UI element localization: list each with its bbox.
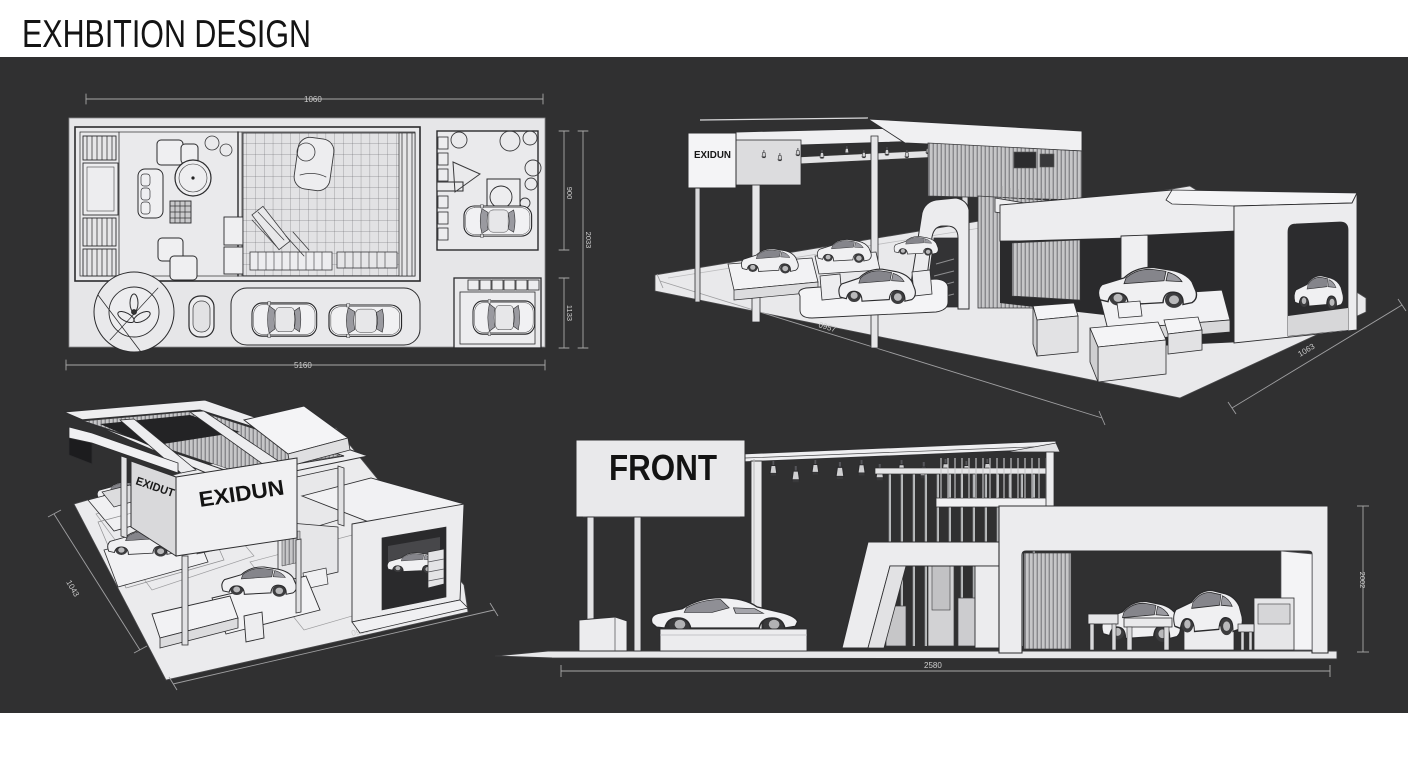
svg-text:2033: 2033 (584, 232, 593, 249)
svg-text:EXIDUN: EXIDUN (694, 150, 731, 161)
svg-text:EXHBITION DESIGN: EXHBITION DESIGN (22, 13, 311, 56)
svg-text:2002: 2002 (1358, 572, 1367, 589)
svg-text:FRONT: FRONT (609, 447, 717, 488)
svg-text:5160: 5160 (294, 361, 312, 370)
svg-text:900: 900 (565, 187, 574, 200)
svg-text:1133: 1133 (565, 305, 574, 321)
svg-text:2580: 2580 (924, 661, 942, 670)
svg-text:1060: 1060 (304, 95, 322, 104)
